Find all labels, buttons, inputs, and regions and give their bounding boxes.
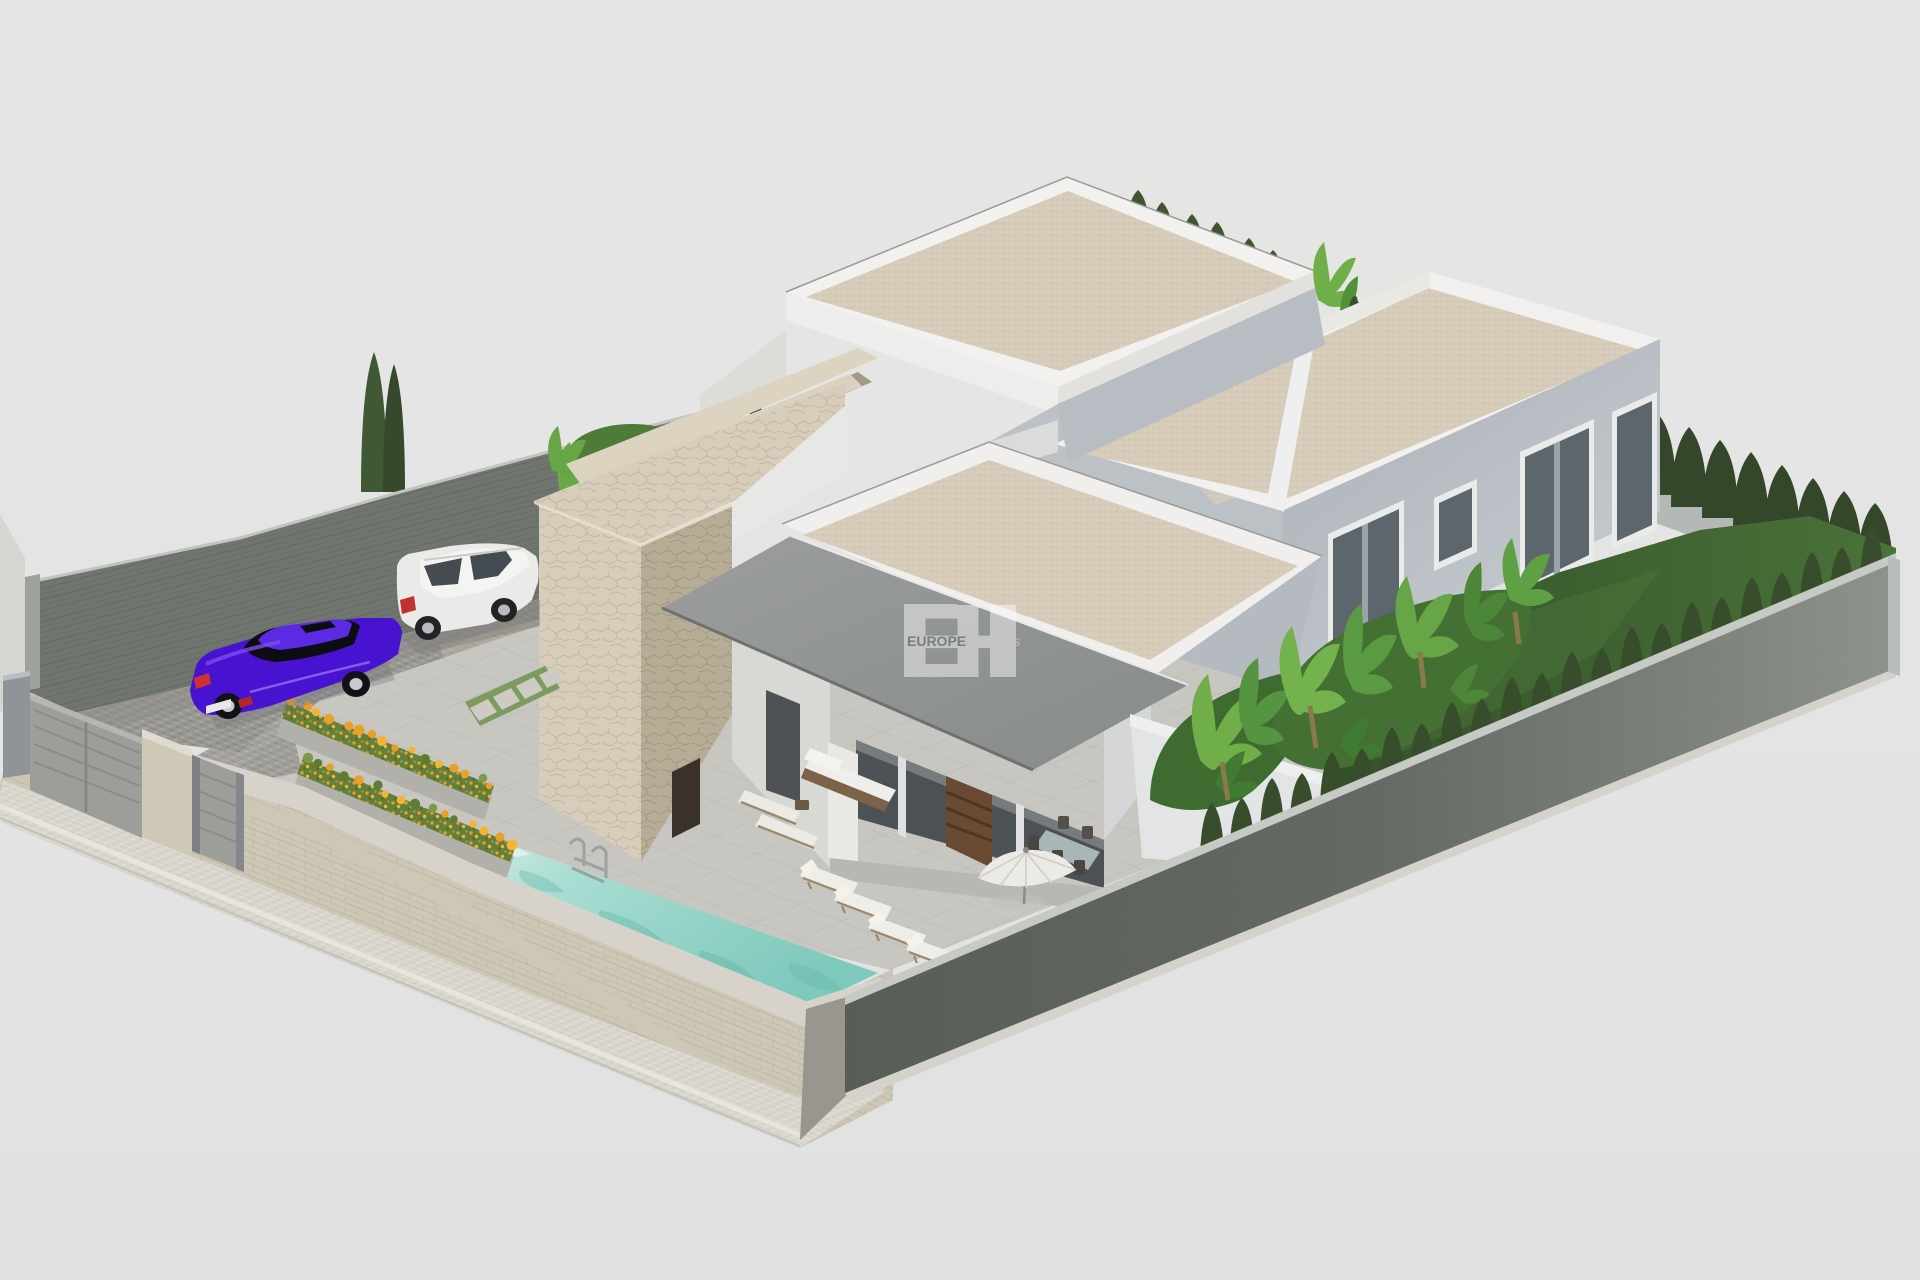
svg-text:homes: homes	[966, 633, 1023, 649]
svg-text:EUROPE: EUROPE	[907, 633, 966, 649]
